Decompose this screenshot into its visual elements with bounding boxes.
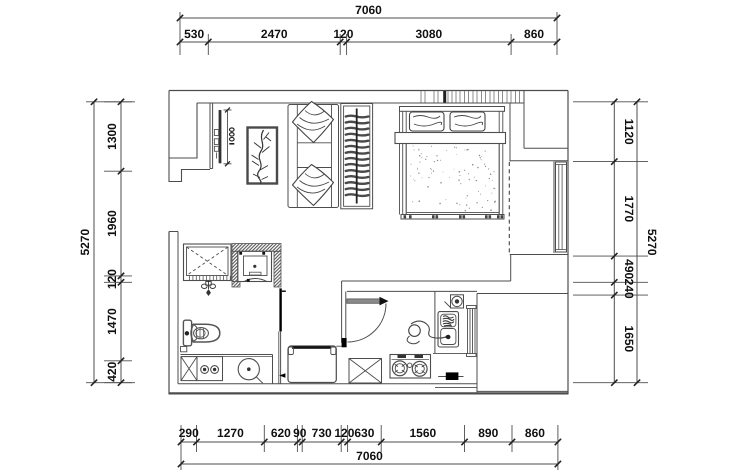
svg-text:1120: 1120: [622, 119, 636, 145]
svg-text:290: 290: [179, 426, 199, 440]
svg-text:860: 860: [524, 27, 544, 41]
svg-text:630: 630: [354, 426, 374, 440]
svg-text:5270: 5270: [78, 229, 92, 256]
svg-text:120: 120: [333, 27, 353, 41]
svg-text:1470: 1470: [105, 308, 119, 335]
svg-text:420: 420: [105, 361, 119, 381]
svg-text:240: 240: [622, 279, 636, 299]
svg-text:620: 620: [271, 426, 291, 440]
svg-text:1300: 1300: [105, 123, 119, 150]
svg-text:120: 120: [334, 426, 354, 440]
svg-text:90: 90: [293, 426, 307, 440]
svg-text:490: 490: [622, 259, 636, 279]
svg-text:1270: 1270: [217, 426, 244, 440]
svg-text:1650: 1650: [622, 326, 636, 353]
svg-text:2470: 2470: [261, 27, 288, 41]
svg-text:1770: 1770: [622, 195, 636, 222]
svg-text:7060: 7060: [355, 3, 382, 17]
svg-text:530: 530: [184, 27, 204, 41]
svg-text:890: 890: [478, 426, 498, 440]
svg-text:1960: 1960: [105, 210, 119, 237]
svg-text:120: 120: [105, 269, 119, 289]
svg-text:7060: 7060: [356, 449, 383, 463]
svg-text:1560: 1560: [409, 426, 436, 440]
svg-text:860: 860: [525, 426, 545, 440]
svg-text:3080: 3080: [415, 27, 442, 41]
svg-text:730: 730: [312, 426, 332, 440]
svg-text:5270: 5270: [645, 229, 659, 256]
